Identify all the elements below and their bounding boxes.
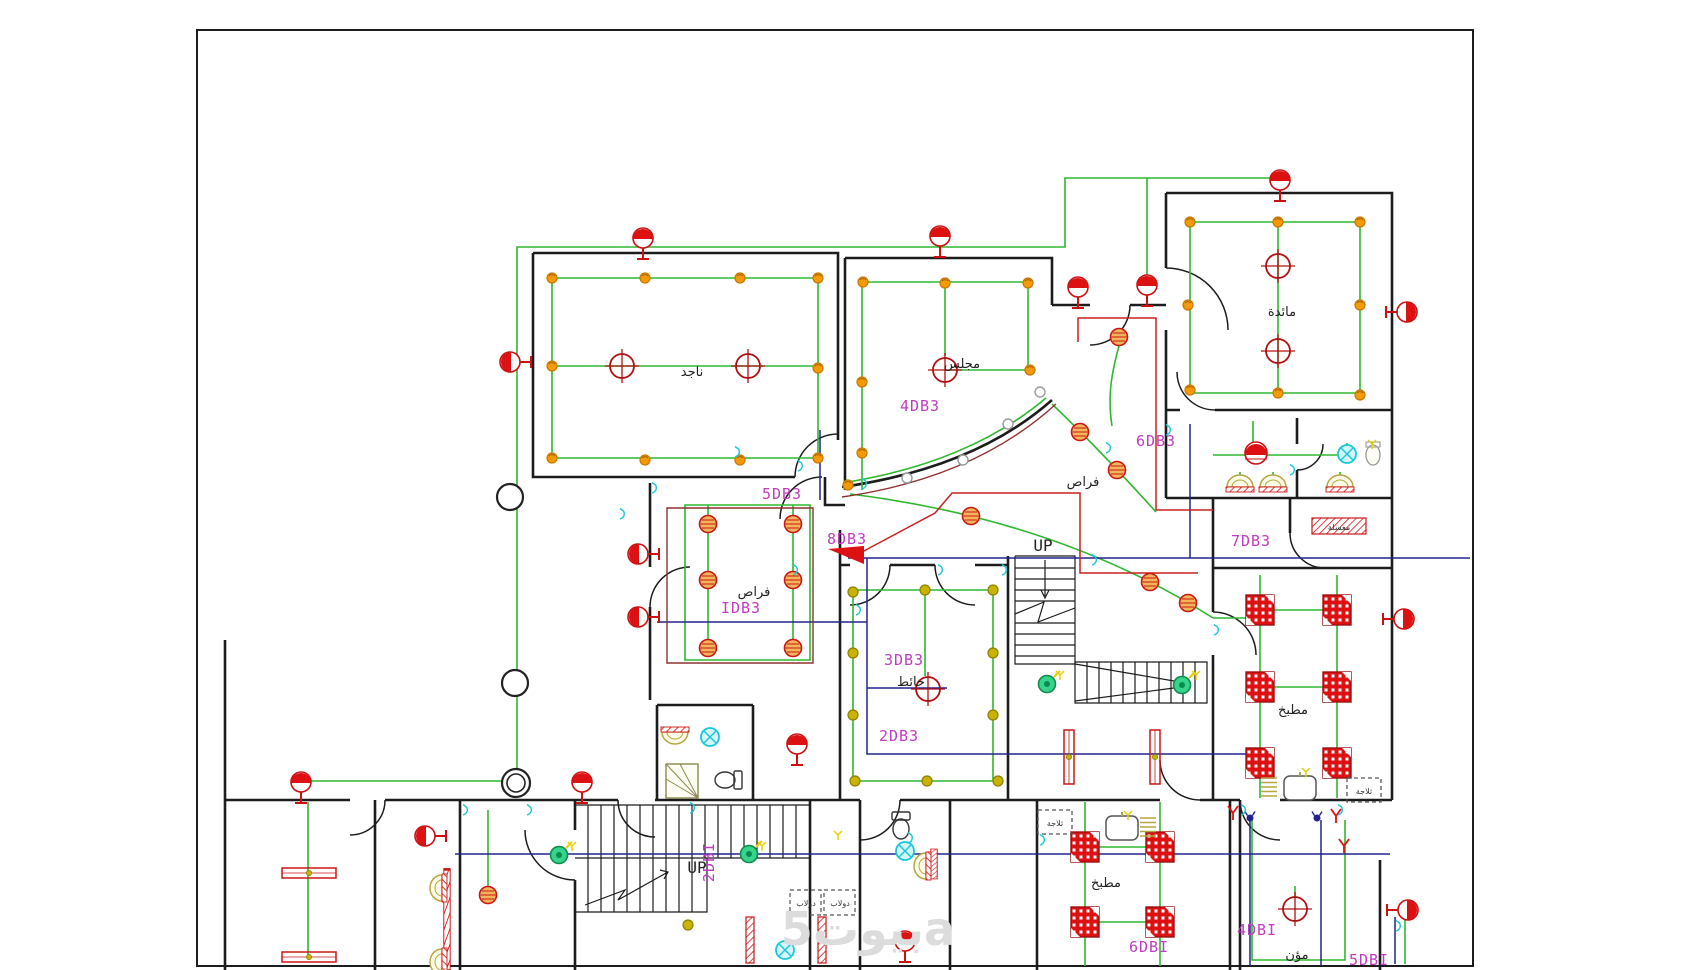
- switch-icon: [735, 447, 739, 458]
- wall-light-icon: [787, 734, 807, 765]
- washbasin-icon: [430, 874, 447, 902]
- kitchen-sink-icon: [1106, 812, 1138, 840]
- downlight-icon: [700, 640, 717, 657]
- socket-outlet-icon: [1245, 812, 1255, 822]
- ceiling-spot-icon: [683, 920, 693, 930]
- panel-label-4db3: 4DB3: [900, 397, 940, 415]
- power-circuit-wiring: [455, 424, 1470, 966]
- toilet-icon: [892, 812, 910, 839]
- fluorescent-fixture-icon: [1246, 748, 1274, 778]
- wall-light-icon: [415, 826, 446, 846]
- bidet-icon: [1366, 442, 1380, 465]
- downlight-icon: [1109, 462, 1126, 479]
- washbasin-icon: [1326, 475, 1354, 492]
- panel-label-6db3: 6DB3: [1136, 432, 1176, 450]
- ceiling-spot-icon: [1355, 300, 1365, 310]
- ceiling-spot-icon: [848, 587, 858, 597]
- exhaust-fan-icon: [701, 728, 719, 746]
- ceiling-spot-icon: [1185, 385, 1195, 395]
- washbasin-icon: [430, 948, 447, 970]
- db8-panel-icon: [828, 546, 864, 564]
- ceiling-spot-icon: [940, 278, 950, 288]
- switch-icon: [620, 509, 624, 520]
- washbasin-icon: [661, 727, 689, 744]
- ceiling-spot-icon: [857, 377, 867, 387]
- fluorescent-fixture-icon: [1071, 907, 1099, 937]
- strip-light-icon: [282, 952, 336, 962]
- downlight-outline-icon: [1003, 419, 1013, 429]
- downlight-icon: [480, 887, 497, 904]
- switch-icon: [856, 605, 860, 616]
- downlight-outline-icon: [1035, 387, 1045, 397]
- panel-label-5dbi: 5DBI: [1349, 951, 1389, 969]
- ceiling-fan-icon: [551, 842, 573, 864]
- room-label: مؤن: [1285, 948, 1308, 963]
- downlight-icon: [1142, 574, 1159, 591]
- fluorescent-fixture-icon: [1323, 748, 1351, 778]
- wall-light-icon: [1270, 170, 1290, 201]
- switch-icon: [1396, 921, 1400, 932]
- wall-light-icon: [628, 607, 659, 627]
- downlight-icon: [700, 572, 717, 589]
- fluorescent-fixture-icon: [1246, 672, 1274, 702]
- downlight-icon: [700, 516, 717, 533]
- exhaust-fan-icon: [896, 842, 914, 860]
- ceiling-spot-icon: [988, 648, 998, 658]
- wall-light-icon: [1387, 900, 1418, 920]
- switch-icon: [1290, 465, 1294, 476]
- switch-icon: [1106, 443, 1110, 454]
- hatched-column-icon: [931, 849, 937, 879]
- ceiling-fan-icon: [1039, 671, 1061, 693]
- hatched-column-icon: [746, 917, 754, 963]
- wall-light-icon: [1386, 302, 1417, 322]
- wall-light-icon: [1383, 609, 1414, 629]
- ceiling-spot-icon: [813, 453, 823, 463]
- ceiling-spot-icon: [1273, 217, 1283, 227]
- wall-light-icon: [1137, 275, 1157, 306]
- tick-mark-icon: [758, 842, 766, 851]
- ceiling-spot-icon: [920, 585, 930, 595]
- room-label: حائط: [897, 675, 925, 690]
- room-label: مطبخ: [1091, 876, 1121, 891]
- switch-icon: [652, 483, 656, 494]
- panel-label-2db3: 2DB3: [879, 727, 919, 745]
- ceiling-spot-icon: [640, 273, 650, 283]
- downlight-icon: [963, 508, 980, 525]
- downlight-icon: [785, 516, 802, 533]
- tv-outlet-icon: [1331, 809, 1341, 823]
- fixture-label: مغسلة: [1328, 523, 1350, 532]
- room-label: ناجد: [681, 365, 703, 380]
- wall-light-icon: [500, 352, 531, 372]
- fixture-label: ثلاجة: [1047, 819, 1063, 828]
- room-label: مطبخ: [1278, 703, 1308, 718]
- ceiling-spot-icon: [1273, 388, 1283, 398]
- panel-label-7db3: 7DB3: [1231, 532, 1271, 550]
- ceiling-spot-icon: [547, 453, 557, 463]
- panel-label-4dbi: 4DBI: [1237, 921, 1277, 939]
- ceiling-spot-icon: [1025, 365, 1035, 375]
- panel-label-3db3: 3DB3: [884, 651, 924, 669]
- ceiling-spot-icon: [988, 710, 998, 720]
- washbasin-icon: [914, 852, 931, 880]
- wall-light-icon: [1068, 277, 1088, 308]
- room-label: فراص: [738, 585, 771, 600]
- downlight-icon: [1180, 595, 1197, 612]
- labels: 5DB3 4DB3 6DB3 7DB3 8DB3 IDB3 3DB3 2DB3 …: [681, 305, 1389, 969]
- fluorescent-fixture-icon: [1323, 595, 1351, 625]
- ceiling-spot-icon: [843, 480, 853, 490]
- ceiling-spot-icon: [547, 361, 557, 371]
- exhaust-fan-icon: [1338, 445, 1356, 463]
- ceiling-half-light-icon: [1245, 442, 1267, 464]
- cad-viewport: 5DB3 4DB3 6DB3 7DB3 8DB3 IDB3 3DB3 2DB3 …: [0, 0, 1700, 970]
- ceiling-light-icon: [731, 349, 765, 383]
- ceiling-spot-icon: [857, 448, 867, 458]
- wall-light-icon: [572, 772, 592, 803]
- fluorescent-fixture-icon: [1071, 832, 1099, 862]
- ceiling-spot-icon: [988, 585, 998, 595]
- downlight-icon: [785, 572, 802, 589]
- ceiling-spot-icon: [922, 776, 932, 786]
- room-label: مجلس: [944, 357, 980, 372]
- tick-mark-icon: [1192, 671, 1200, 680]
- strip-light-icon: [282, 868, 336, 878]
- stairs-up-label: UP: [1033, 536, 1052, 555]
- column-icon: [497, 484, 523, 510]
- switch-icon: [1214, 625, 1218, 636]
- ceiling-light-icon: [1278, 892, 1312, 926]
- fluorescent-fixture-icon: [1146, 907, 1174, 937]
- ceiling-spot-icon: [1023, 278, 1033, 288]
- downlight-outline-icon: [902, 473, 912, 483]
- panel-label-1db3: IDB3: [721, 599, 761, 617]
- downlight-icon: [1072, 424, 1089, 441]
- ceiling-spot-icon: [1183, 300, 1193, 310]
- room-label: فراص: [1067, 475, 1100, 490]
- switch-icon: [1040, 835, 1044, 846]
- downlight-outline-icon: [958, 455, 968, 465]
- ceiling-spot-icon: [547, 273, 557, 283]
- washbasin-icon: [1259, 475, 1287, 492]
- switch-icon: [938, 565, 942, 576]
- panel-label-8db3: 8DB3: [827, 530, 867, 548]
- ceiling-spot-icon: [850, 776, 860, 786]
- floor-plan-drawing: 5DB3 4DB3 6DB3 7DB3 8DB3 IDB3 3DB3 2DB3 …: [0, 0, 1700, 970]
- downlight-icon: [785, 640, 802, 657]
- ceiling-spot-icon: [858, 277, 868, 287]
- ceiling-light-icon: [605, 349, 639, 383]
- wall-light-icon: [633, 228, 653, 259]
- shower-tray-icon: [666, 764, 698, 798]
- ceiling-spot-icon: [640, 455, 650, 465]
- drainboard-icon: [1261, 778, 1277, 796]
- ceiling-spot-icon: [1355, 217, 1365, 227]
- toilet-icon: [715, 771, 742, 789]
- wall-light-icon: [628, 544, 659, 564]
- symbols: [282, 170, 1418, 970]
- ceiling-spot-icon: [1355, 390, 1365, 400]
- kitchen-sink-icon: [1284, 772, 1316, 800]
- fluorescent-fixture-icon: [1323, 672, 1351, 702]
- fixture-label: ثلاجة: [1356, 787, 1372, 796]
- ceiling-spot-icon: [848, 648, 858, 658]
- tick-mark-icon: [834, 831, 842, 840]
- fluorescent-fixture-icon: [1246, 595, 1274, 625]
- tv-outlet-icon: [1339, 839, 1349, 853]
- panel-label-6dbi: 6DBI: [1129, 938, 1169, 956]
- wall-light-icon: [291, 772, 311, 803]
- ceiling-light-icon: [1261, 334, 1295, 368]
- ceiling-light-icon: [1261, 249, 1295, 283]
- ceiling-spot-icon: [848, 710, 858, 720]
- stairs-up-label: UP: [687, 858, 706, 877]
- downlight-icon: [1111, 329, 1128, 346]
- strip-light-icon: [1150, 730, 1160, 784]
- panel-label-5db3: 5DB3: [762, 485, 802, 503]
- strip-light-icon: [1064, 730, 1074, 784]
- ceiling-spot-icon: [813, 363, 823, 373]
- room-label: مائدة: [1268, 305, 1296, 320]
- ceiling-spot-icon: [813, 273, 823, 283]
- washbasin-icon: [1226, 475, 1254, 492]
- watermark: بيوت5a: [781, 902, 955, 956]
- ceiling-spot-icon: [1185, 217, 1195, 227]
- switch-icon: [463, 805, 467, 816]
- column-icon: [502, 670, 528, 696]
- ceiling-spot-icon: [993, 776, 1003, 786]
- switch-icon: [798, 461, 802, 472]
- ceiling-fan-icon: [1174, 672, 1196, 694]
- wall-light-icon: [930, 226, 950, 257]
- switch-icon: [527, 805, 531, 816]
- column-icon: [502, 769, 530, 797]
- ceiling-spot-icon: [735, 273, 745, 283]
